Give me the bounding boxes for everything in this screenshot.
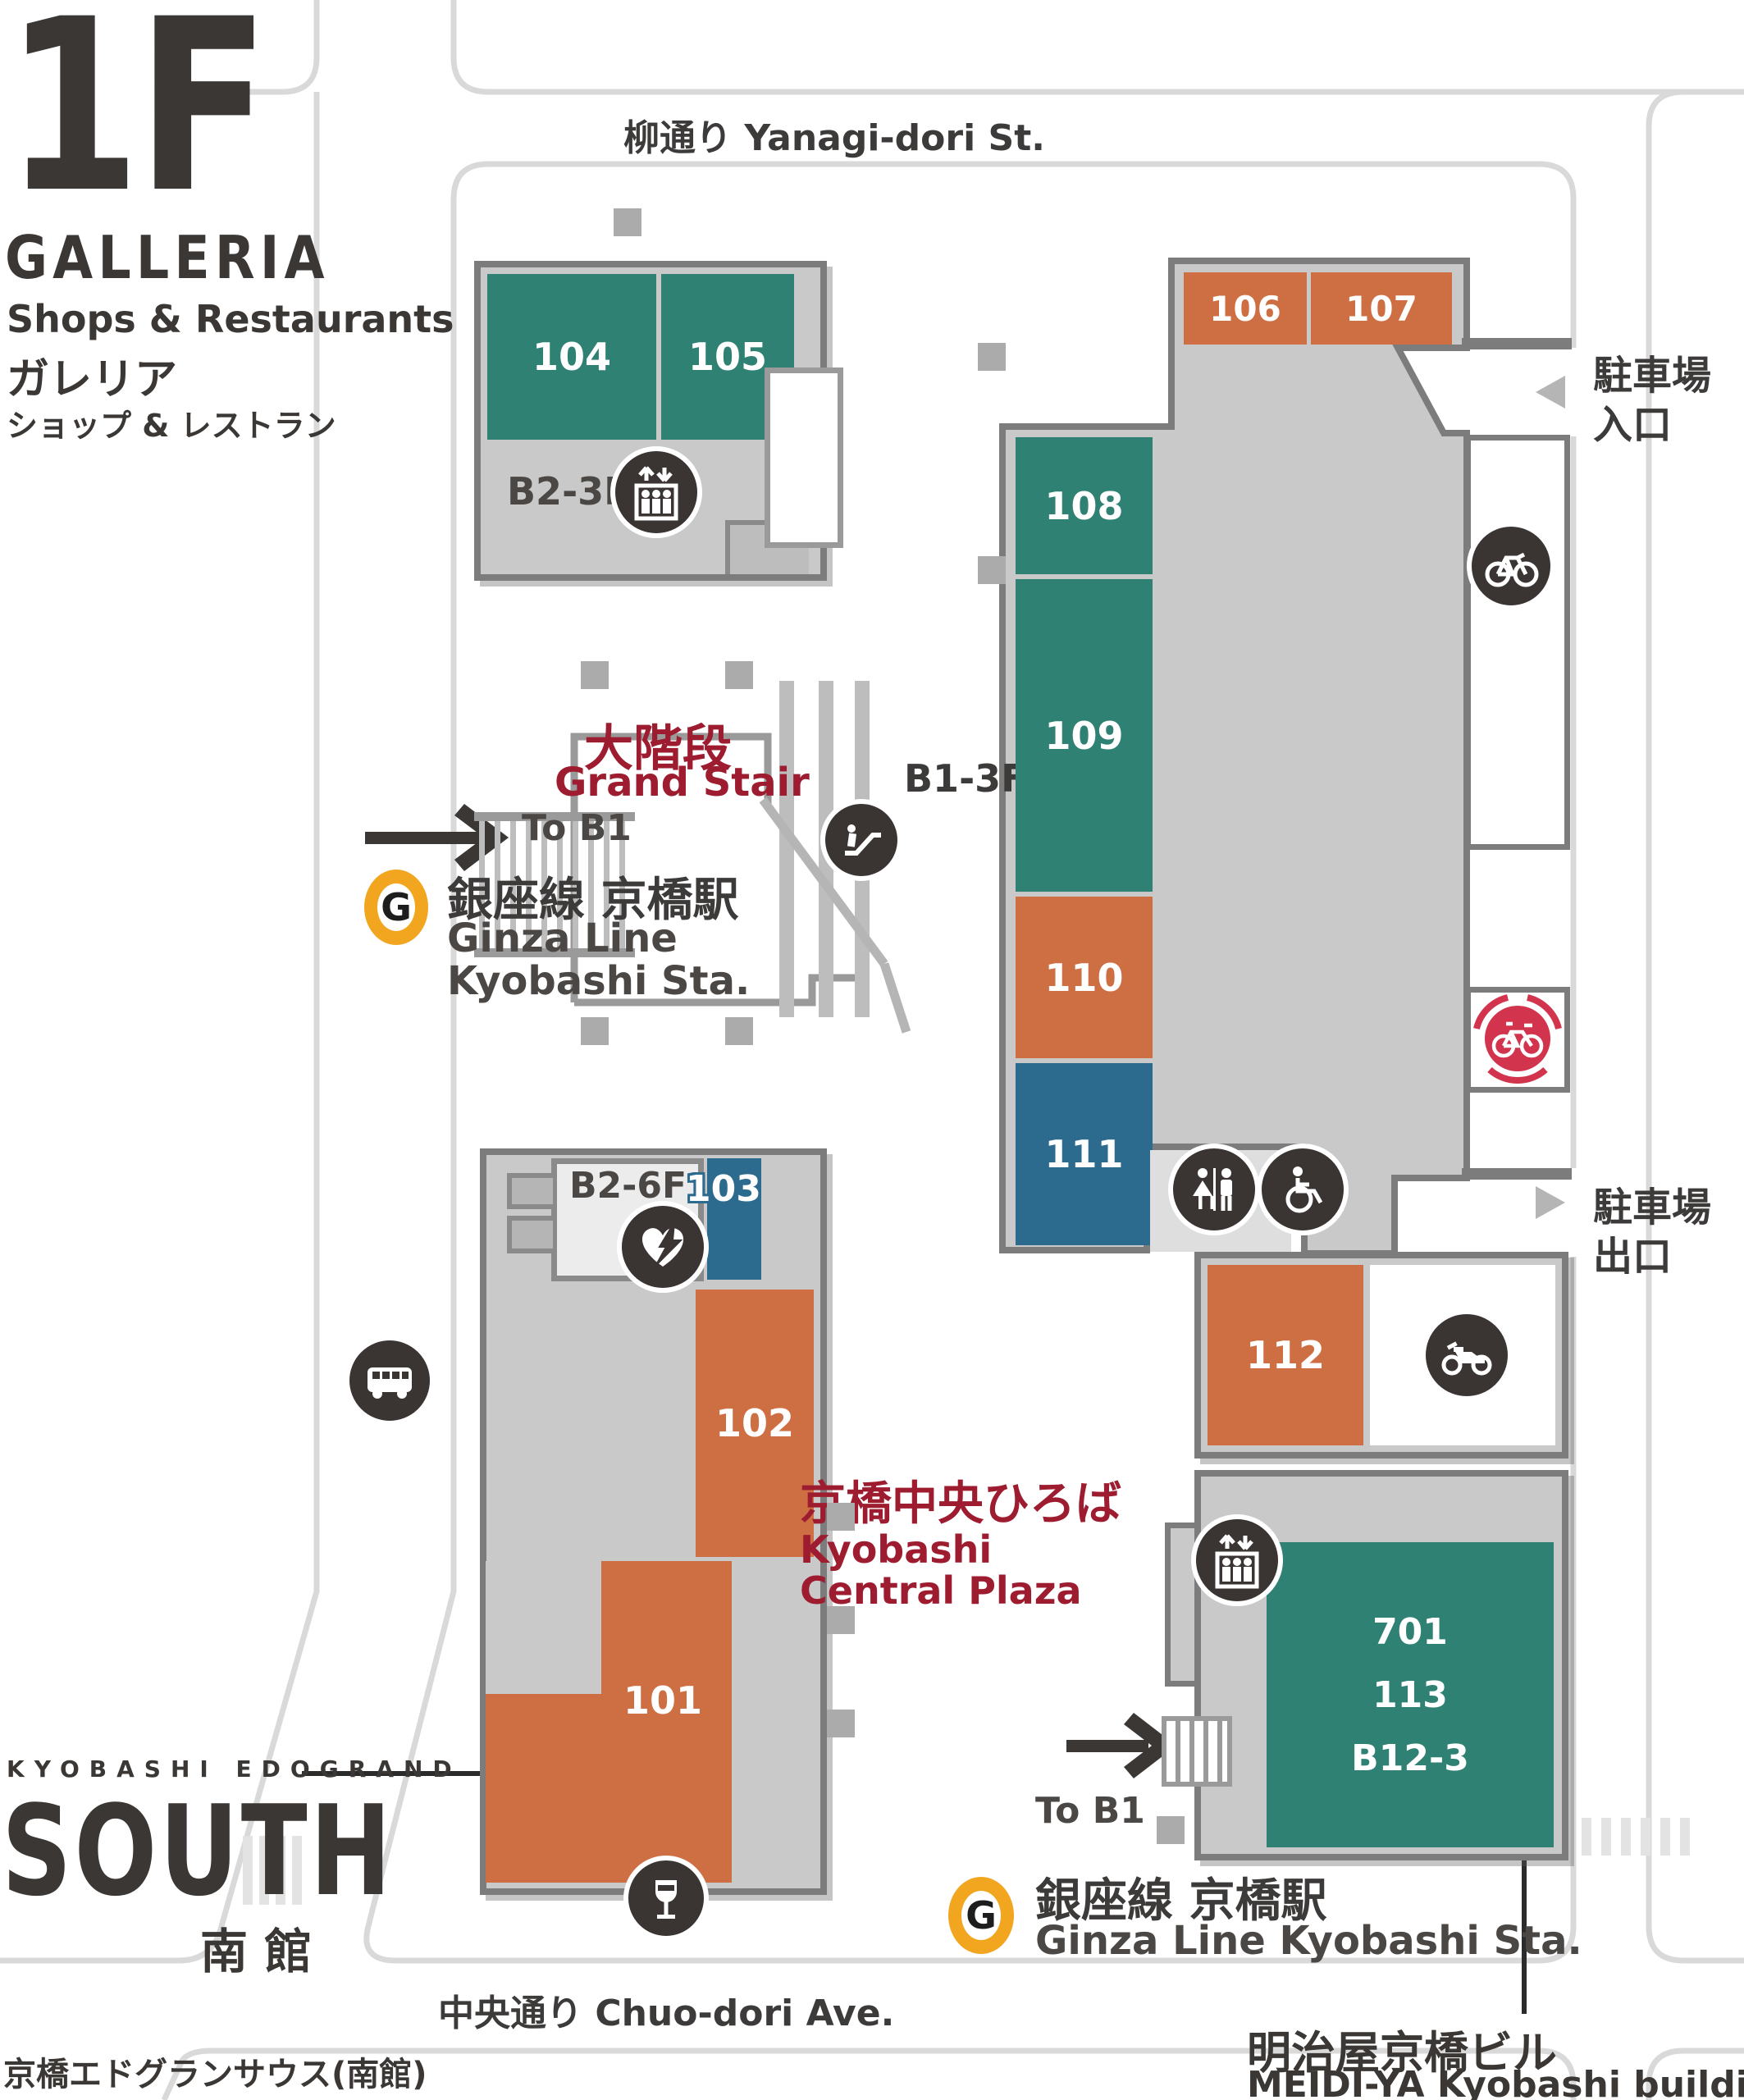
bus-icon [345,1335,435,1426]
lobby-notch-1 [507,1173,553,1209]
elevator-south-floors: B2-6F [569,1165,687,1207]
ginza-line-g: G [377,883,415,931]
pillar [725,661,753,689]
floor-map-1f: 1F GALLERIA Shops & Restaurants ガレリア ショッ… [0,0,1744,2100]
parking-exit-l1: 駐車場 [1593,1183,1711,1232]
room-109: 109 [1016,579,1153,892]
station-bottom-en: Ginza Line Kyobashi Sta. [1035,1918,1582,1964]
elevator-icon-south [1191,1514,1283,1606]
room-701-113-b123: 701 113 B12-3 [1267,1542,1554,1847]
to-b1-arrow-south [1066,1713,1176,1778]
south-name-jp: 南 館 [200,1913,312,1982]
aed-icon [617,1201,709,1293]
pillar [978,556,1006,584]
pillar [1157,1816,1185,1844]
escalator-icon [820,799,902,881]
escalator-floors: B1-3F [904,756,1027,801]
bike-share-icon [1470,991,1565,1086]
ginza-line-logo-south: G [948,1877,1014,1954]
meidiya-label-en: MEIDI-YA Kyobashi building [1247,2064,1744,2100]
station-bottom-to-b1: To B1 [1035,1790,1145,1832]
room-101-label: 101 [623,1678,702,1723]
grand-stair-to-b1: To B1 [522,807,632,849]
bicycle-parking-area [1465,435,1570,850]
ginza-line-logo: G [364,870,428,945]
room-112: 112 [1208,1265,1363,1445]
pillar [725,1017,753,1045]
wheelchair-icon [1257,1144,1349,1235]
room-113-label: 113 [1372,1674,1448,1716]
pillar [827,1710,855,1737]
parking-exit-l2: 出口 [1593,1232,1711,1281]
wine-bar-icon [623,1856,709,1941]
room-106: 106 [1184,272,1307,345]
pillar [581,661,609,689]
room-102: 102 [696,1290,814,1557]
parking-entrance-l1: 駐車場 [1593,351,1711,400]
pillar [978,343,1006,371]
bicycle-icon [1467,522,1555,610]
south-full-jp: 京橋エドグランサウス(南館) [3,2047,427,2095]
pillar [581,1017,609,1045]
parking-entrance-l2: 入口 [1593,400,1711,450]
pillar [827,1606,855,1634]
lobby-notch-2 [507,1216,553,1253]
pillar [827,1503,855,1531]
room-701-label: 701 [1372,1611,1448,1653]
grand-stair-label-en: Grand Stair [555,760,810,806]
plaza-label-en1: Kyobashi [800,1527,992,1572]
station-top-en1: Ginza Line [447,915,678,961]
room-108: 108 [1016,437,1153,574]
room-111: 111 [1016,1063,1153,1245]
room-103-label: 103 [686,1168,761,1210]
room-101-notch [486,1561,601,1694]
room-110: 110 [1016,897,1153,1058]
parking-exit-label: 駐車場 出口 [1593,1183,1711,1281]
room-b12-3-label: B12-3 [1351,1737,1469,1779]
south-name: SOUTH [2,1778,394,1924]
station-top-en2: Kyobashi Sta. [447,958,750,1004]
motorcycle-icon [1421,1309,1513,1401]
restroom-icon [1168,1144,1260,1235]
stairs-to-b1-south [1162,1716,1232,1787]
ginza-line-g-south: G [961,1891,1001,1940]
pillar [614,208,641,236]
parking-entrance-label: 駐車場 入口 [1593,351,1711,450]
room-107: 107 [1311,272,1452,345]
